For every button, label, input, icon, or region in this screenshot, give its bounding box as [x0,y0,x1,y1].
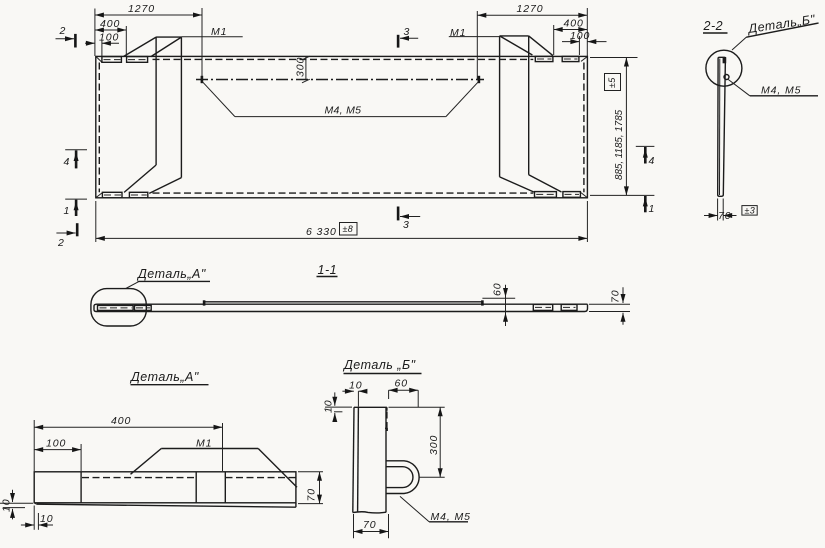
svg-text:М1: М1 [450,27,466,39]
svg-text:±5: ±5 [607,77,617,88]
svg-text:±3: ±3 [745,205,756,215]
svg-text:Деталь„Б": Деталь„Б" [745,12,816,36]
svg-text:10: 10 [40,513,53,525]
svg-text:70: 70 [610,290,622,303]
svg-text:М4, М5: М4, М5 [325,105,362,117]
svg-text:Деталь„А": Деталь„А" [136,267,206,281]
svg-text:М4, М5: М4, М5 [761,85,801,97]
svg-text:885, 1185, 1785: 885, 1185, 1785 [614,109,625,180]
svg-text:1: 1 [649,203,656,215]
svg-text:2: 2 [59,25,67,37]
svg-text:100: 100 [99,32,119,44]
svg-text:4: 4 [64,156,71,168]
svg-text:10: 10 [349,380,362,392]
svg-text:М4, М5: М4, М5 [431,511,471,523]
svg-text:М1: М1 [196,438,212,450]
svg-text:2: 2 [57,237,65,249]
svg-text:1: 1 [64,205,71,217]
svg-text:70: 70 [306,488,318,501]
svg-text:60: 60 [492,283,504,296]
svg-text:3: 3 [404,26,411,38]
svg-text:400: 400 [111,415,131,427]
svg-text:2-2: 2-2 [703,19,724,33]
svg-text:3: 3 [403,219,410,231]
svg-text:70: 70 [363,519,376,531]
svg-text:300: 300 [295,57,307,77]
svg-text:400: 400 [100,18,120,30]
svg-text:100: 100 [46,438,66,450]
svg-text:60: 60 [395,378,408,390]
svg-text:100: 100 [570,30,590,42]
svg-text:Деталь „Б": Деталь „Б" [342,358,416,372]
svg-text:1270: 1270 [128,3,155,15]
svg-text:1-1: 1-1 [318,263,338,277]
svg-text:300: 300 [428,435,440,455]
svg-text:4: 4 [649,155,656,167]
svg-text:1270: 1270 [517,3,544,15]
svg-text:10: 10 [323,400,335,413]
svg-text:400: 400 [564,18,584,30]
svg-text:6 330: 6 330 [306,226,337,238]
svg-text:10: 10 [1,499,13,512]
svg-text:Деталь„А": Деталь„А" [129,370,199,384]
svg-text:70: 70 [718,210,731,222]
svg-text:±8: ±8 [343,224,354,234]
